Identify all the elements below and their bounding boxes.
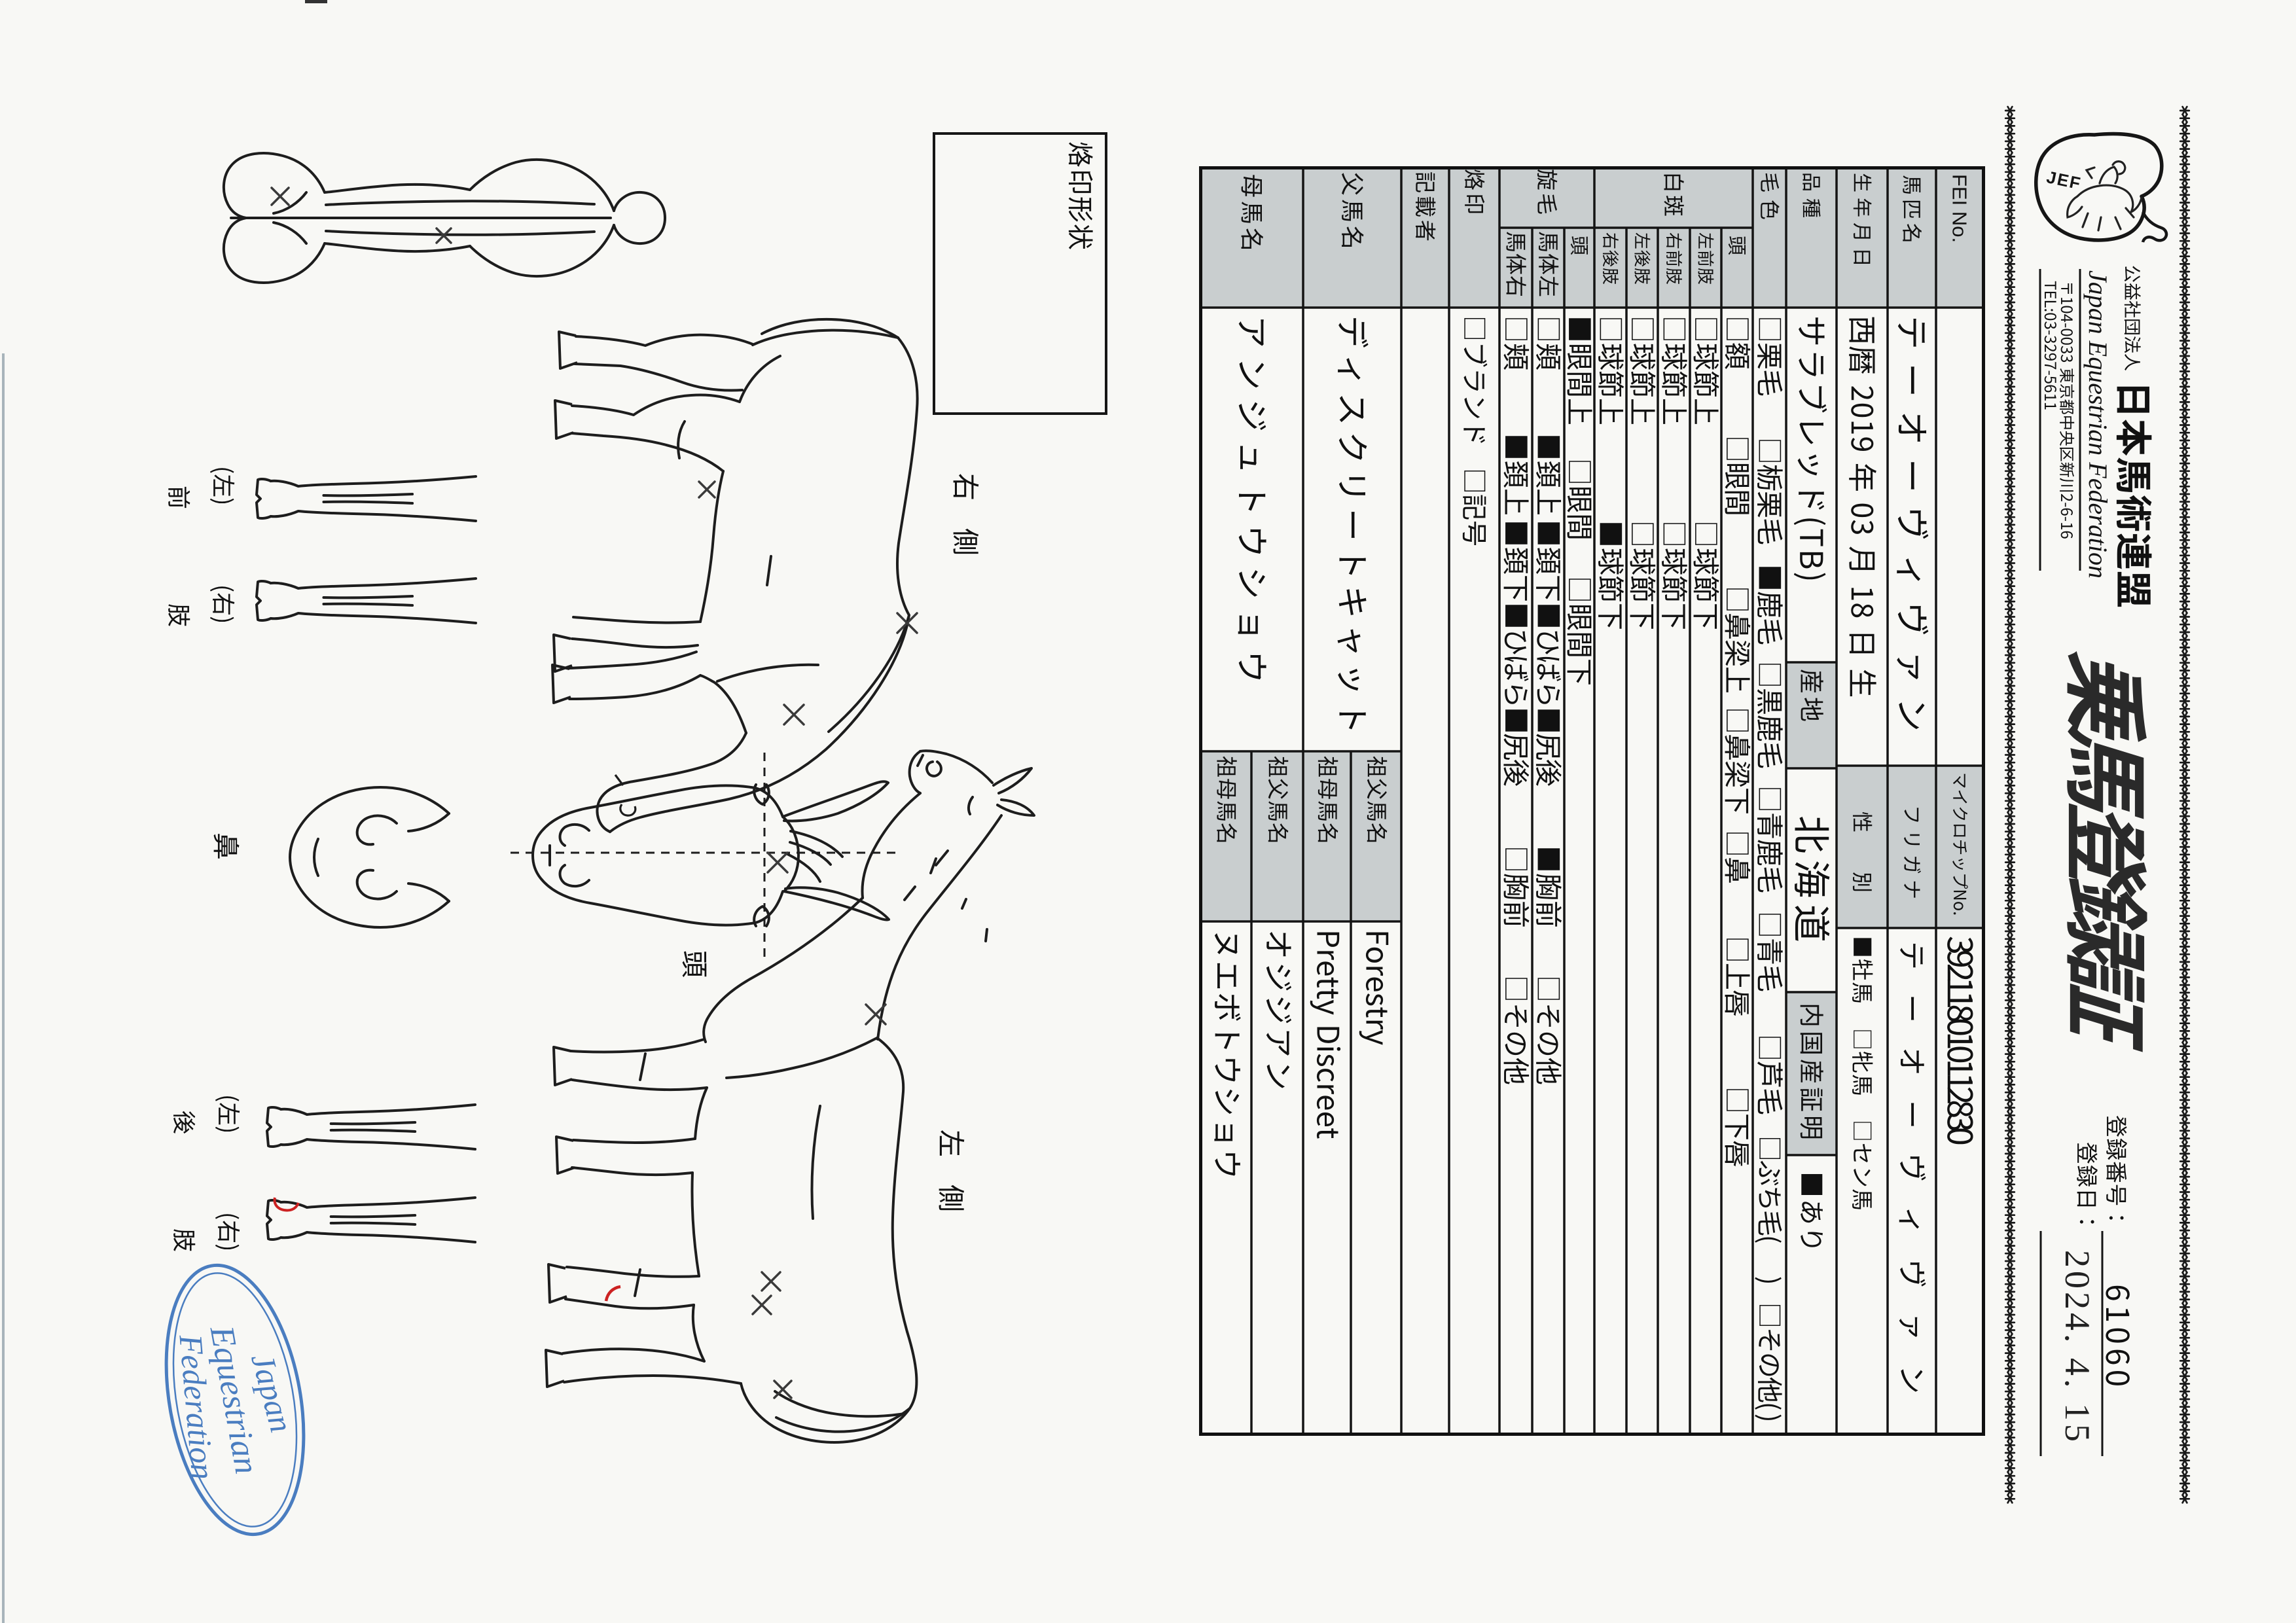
svg-text:Japan Equestrian Federation: Japan Equestrian Federation xyxy=(2083,270,2113,579)
svg-text:2024. 4. 15: 2024. 4. 15 xyxy=(2058,1250,2097,1445)
svg-text:JEF: JEF xyxy=(2045,167,2083,194)
svg-text:FEI No.: FEI No. xyxy=(1948,174,1971,243)
